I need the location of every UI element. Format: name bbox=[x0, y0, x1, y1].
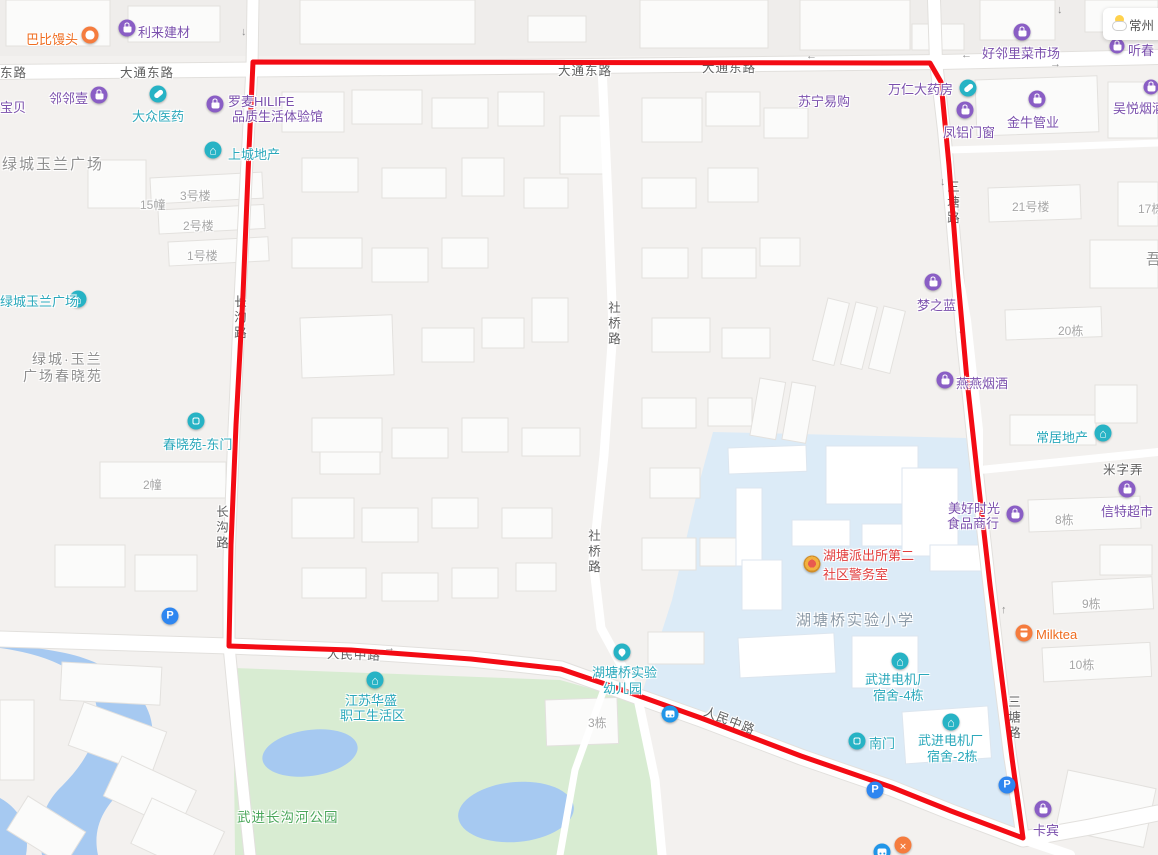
shop-bag-icon[interactable] bbox=[119, 20, 136, 37]
area-label: 武进长沟河公园 bbox=[237, 806, 339, 826]
shop-bag-icon[interactable] bbox=[937, 372, 954, 389]
shop-bag-icon[interactable] bbox=[1007, 506, 1024, 523]
area-label: 湖塘桥实验小学 bbox=[796, 609, 915, 630]
poi-label[interactable]: 梦之蓝 bbox=[917, 295, 956, 314]
gate-icon[interactable] bbox=[188, 413, 205, 430]
poi-label[interactable]: 巴比馒头 bbox=[26, 29, 78, 48]
oneway-arrow: → bbox=[384, 642, 395, 654]
poi-label[interactable]: 南门 bbox=[869, 733, 895, 752]
road-label: 米字弄 bbox=[1103, 459, 1144, 478]
building-label: 8栋 bbox=[1055, 511, 1074, 528]
building-label: 3号楼 bbox=[180, 187, 211, 204]
map-canvas[interactable]: 东路 大通东路 大通东路 大通东路 长沟路 长沟路 社桥路 社桥路 三塘路 三塘… bbox=[0, 0, 1158, 855]
oneway-arrow: ↓ bbox=[958, 324, 964, 336]
poi-label[interactable]: 上城地产 bbox=[228, 144, 280, 163]
oneway-arrow: ↓ bbox=[1057, 4, 1063, 16]
building-label: 1号楼 bbox=[187, 247, 218, 264]
poi-label[interactable]: 凤铝门窗 bbox=[943, 122, 995, 141]
poi-label[interactable]: 苏宁易购 bbox=[798, 91, 850, 110]
poi-label[interactable]: 信特超市 bbox=[1101, 501, 1153, 520]
shop-bag-icon[interactable] bbox=[1014, 24, 1031, 41]
building-label: 21号楼 bbox=[1012, 198, 1049, 215]
shop-bag-icon[interactable] bbox=[957, 102, 974, 119]
shop-bag-icon[interactable] bbox=[1029, 91, 1046, 108]
parking-icon[interactable]: P bbox=[867, 782, 884, 799]
shop-bag-icon[interactable] bbox=[1144, 80, 1158, 95]
poi-label[interactable]: 湖塘派出所第二 bbox=[823, 545, 914, 564]
oneway-arrow: ← bbox=[806, 50, 817, 62]
realty-home-icon[interactable] bbox=[1095, 425, 1112, 442]
poi-label[interactable]: 金牛管业 bbox=[1007, 112, 1059, 131]
road-label: 大通东路 bbox=[702, 57, 756, 76]
area-label: 广场春晓苑 bbox=[23, 366, 103, 386]
oneway-arrow: ↓ bbox=[1014, 796, 1020, 808]
poi-label[interactable]: 常居地产 bbox=[1036, 427, 1088, 446]
area-label: 绿城玉兰广场 bbox=[2, 153, 104, 174]
poi-label[interactable]: 绿城玉兰广场 bbox=[0, 291, 78, 310]
poi-label[interactable]: 社区警务室 bbox=[823, 564, 888, 583]
kindergarten-tree-icon[interactable] bbox=[614, 644, 631, 661]
road-label: 东路 bbox=[0, 62, 27, 81]
pharmacy-pill-icon[interactable] bbox=[960, 80, 977, 97]
poi-label[interactable]: 燕燕烟酒 bbox=[956, 373, 1008, 392]
oneway-arrow: ↑ bbox=[1001, 604, 1007, 616]
shop-bag-icon[interactable] bbox=[207, 96, 224, 113]
police-badge-icon[interactable] bbox=[804, 556, 821, 573]
weather-city: 常州 bbox=[1129, 15, 1154, 34]
poi-label[interactable]: 品质生活体验馆 bbox=[232, 106, 323, 125]
community-home-icon[interactable] bbox=[367, 672, 384, 689]
road-label: 人民中路 bbox=[327, 643, 382, 664]
building-label: 3栋 bbox=[588, 714, 607, 731]
poi-label[interactable]: 幼儿园 bbox=[603, 678, 642, 697]
road-label: 长沟路 bbox=[212, 505, 231, 552]
shop-bag-icon[interactable] bbox=[1110, 39, 1125, 54]
parking-icon[interactable]: P bbox=[162, 608, 179, 625]
building-label: 10栋 bbox=[1069, 656, 1094, 673]
building-label: 2号楼 bbox=[183, 217, 214, 234]
bus-stop-icon[interactable] bbox=[662, 706, 679, 723]
poi-label[interactable]: Milktea bbox=[1036, 627, 1077, 642]
area-label: 吾 bbox=[1146, 248, 1158, 269]
shop-bag-icon[interactable] bbox=[1035, 801, 1052, 818]
building-label: 15幢 bbox=[140, 196, 165, 213]
dorm-home-icon[interactable] bbox=[943, 714, 960, 731]
oneway-arrow: ↓ bbox=[241, 26, 247, 38]
poi-label[interactable]: 卡宾 bbox=[1033, 820, 1059, 839]
poi-label[interactable]: 食品商行 bbox=[947, 513, 999, 532]
parking-icon[interactable]: P bbox=[999, 777, 1016, 794]
realty-home-icon[interactable] bbox=[205, 142, 222, 159]
weather-widget[interactable]: 常州 bbox=[1103, 8, 1158, 40]
road-label: 三塘路 bbox=[943, 180, 962, 227]
poi-label[interactable]: 听春 bbox=[1128, 40, 1154, 59]
road-label: 大通东路 bbox=[120, 62, 174, 81]
building-label: 20栋 bbox=[1058, 322, 1083, 339]
road-label: 大通东路 bbox=[558, 60, 612, 79]
shop-bag-icon[interactable] bbox=[925, 274, 942, 291]
road-label: 社桥路 bbox=[584, 529, 603, 576]
restaurant-icon[interactable] bbox=[895, 837, 912, 854]
milktea-cup-icon[interactable] bbox=[1016, 625, 1033, 642]
gate-icon[interactable] bbox=[849, 733, 866, 750]
poi-label[interactable]: 职工生活区 bbox=[340, 705, 405, 724]
road-label: 三塘路 bbox=[1004, 695, 1023, 742]
poi-label[interactable]: 宿舍-2栋 bbox=[927, 746, 978, 765]
poi-label[interactable]: 邻邻壹 bbox=[49, 88, 88, 107]
poi-label[interactable]: 万仁大药房 bbox=[888, 79, 953, 98]
oneway-arrow: ← bbox=[272, 639, 283, 651]
building-label: 17栋 bbox=[1138, 200, 1158, 217]
poi-label[interactable]: 大众医药 bbox=[132, 106, 184, 125]
pharmacy-pill-icon[interactable] bbox=[150, 86, 167, 103]
poi-label[interactable]: 吴悦烟酒 bbox=[1113, 98, 1158, 117]
road-label: 社桥路 bbox=[604, 301, 623, 348]
building-label: 9栋 bbox=[1082, 595, 1101, 612]
bun-icon[interactable] bbox=[82, 27, 99, 44]
poi-label[interactable]: 好邻里菜市场 bbox=[982, 43, 1060, 62]
poi-label[interactable]: 春晓苑-东门 bbox=[163, 434, 232, 453]
dorm-home-icon[interactable] bbox=[892, 653, 909, 670]
bus-stop-icon[interactable] bbox=[874, 844, 891, 855]
oneway-arrow: ↓ bbox=[940, 176, 946, 188]
oneway-arrow: ↓ bbox=[989, 590, 995, 602]
shop-bag-icon[interactable] bbox=[91, 87, 108, 104]
oneway-arrow: ← bbox=[961, 49, 972, 61]
poi-label[interactable]: 宝贝 bbox=[0, 97, 26, 116]
poi-label[interactable]: 宿舍-4栋 bbox=[873, 685, 924, 704]
building-label: 2幢 bbox=[143, 476, 162, 493]
poi-label[interactable]: 利来建材 bbox=[138, 22, 190, 41]
store-icon[interactable] bbox=[1119, 481, 1136, 498]
road-label: 长沟路 bbox=[230, 295, 249, 342]
